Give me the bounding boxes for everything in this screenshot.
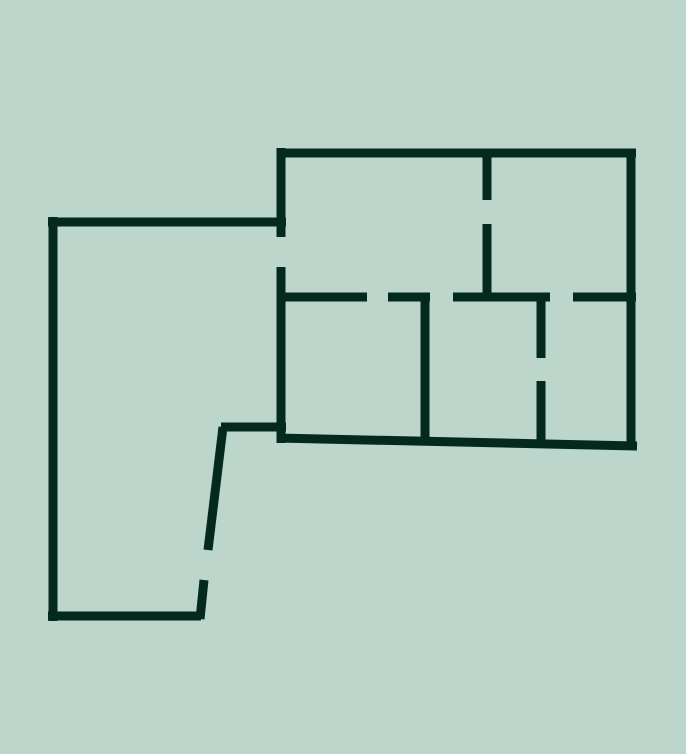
floor-plan-drawing xyxy=(0,0,686,754)
right-wing-bottom-wall xyxy=(277,438,637,446)
left-room-slanted-wall-upper xyxy=(208,427,223,550)
floor-plan-canvas xyxy=(0,0,686,754)
left-room-slanted-wall-lower xyxy=(200,580,204,619)
